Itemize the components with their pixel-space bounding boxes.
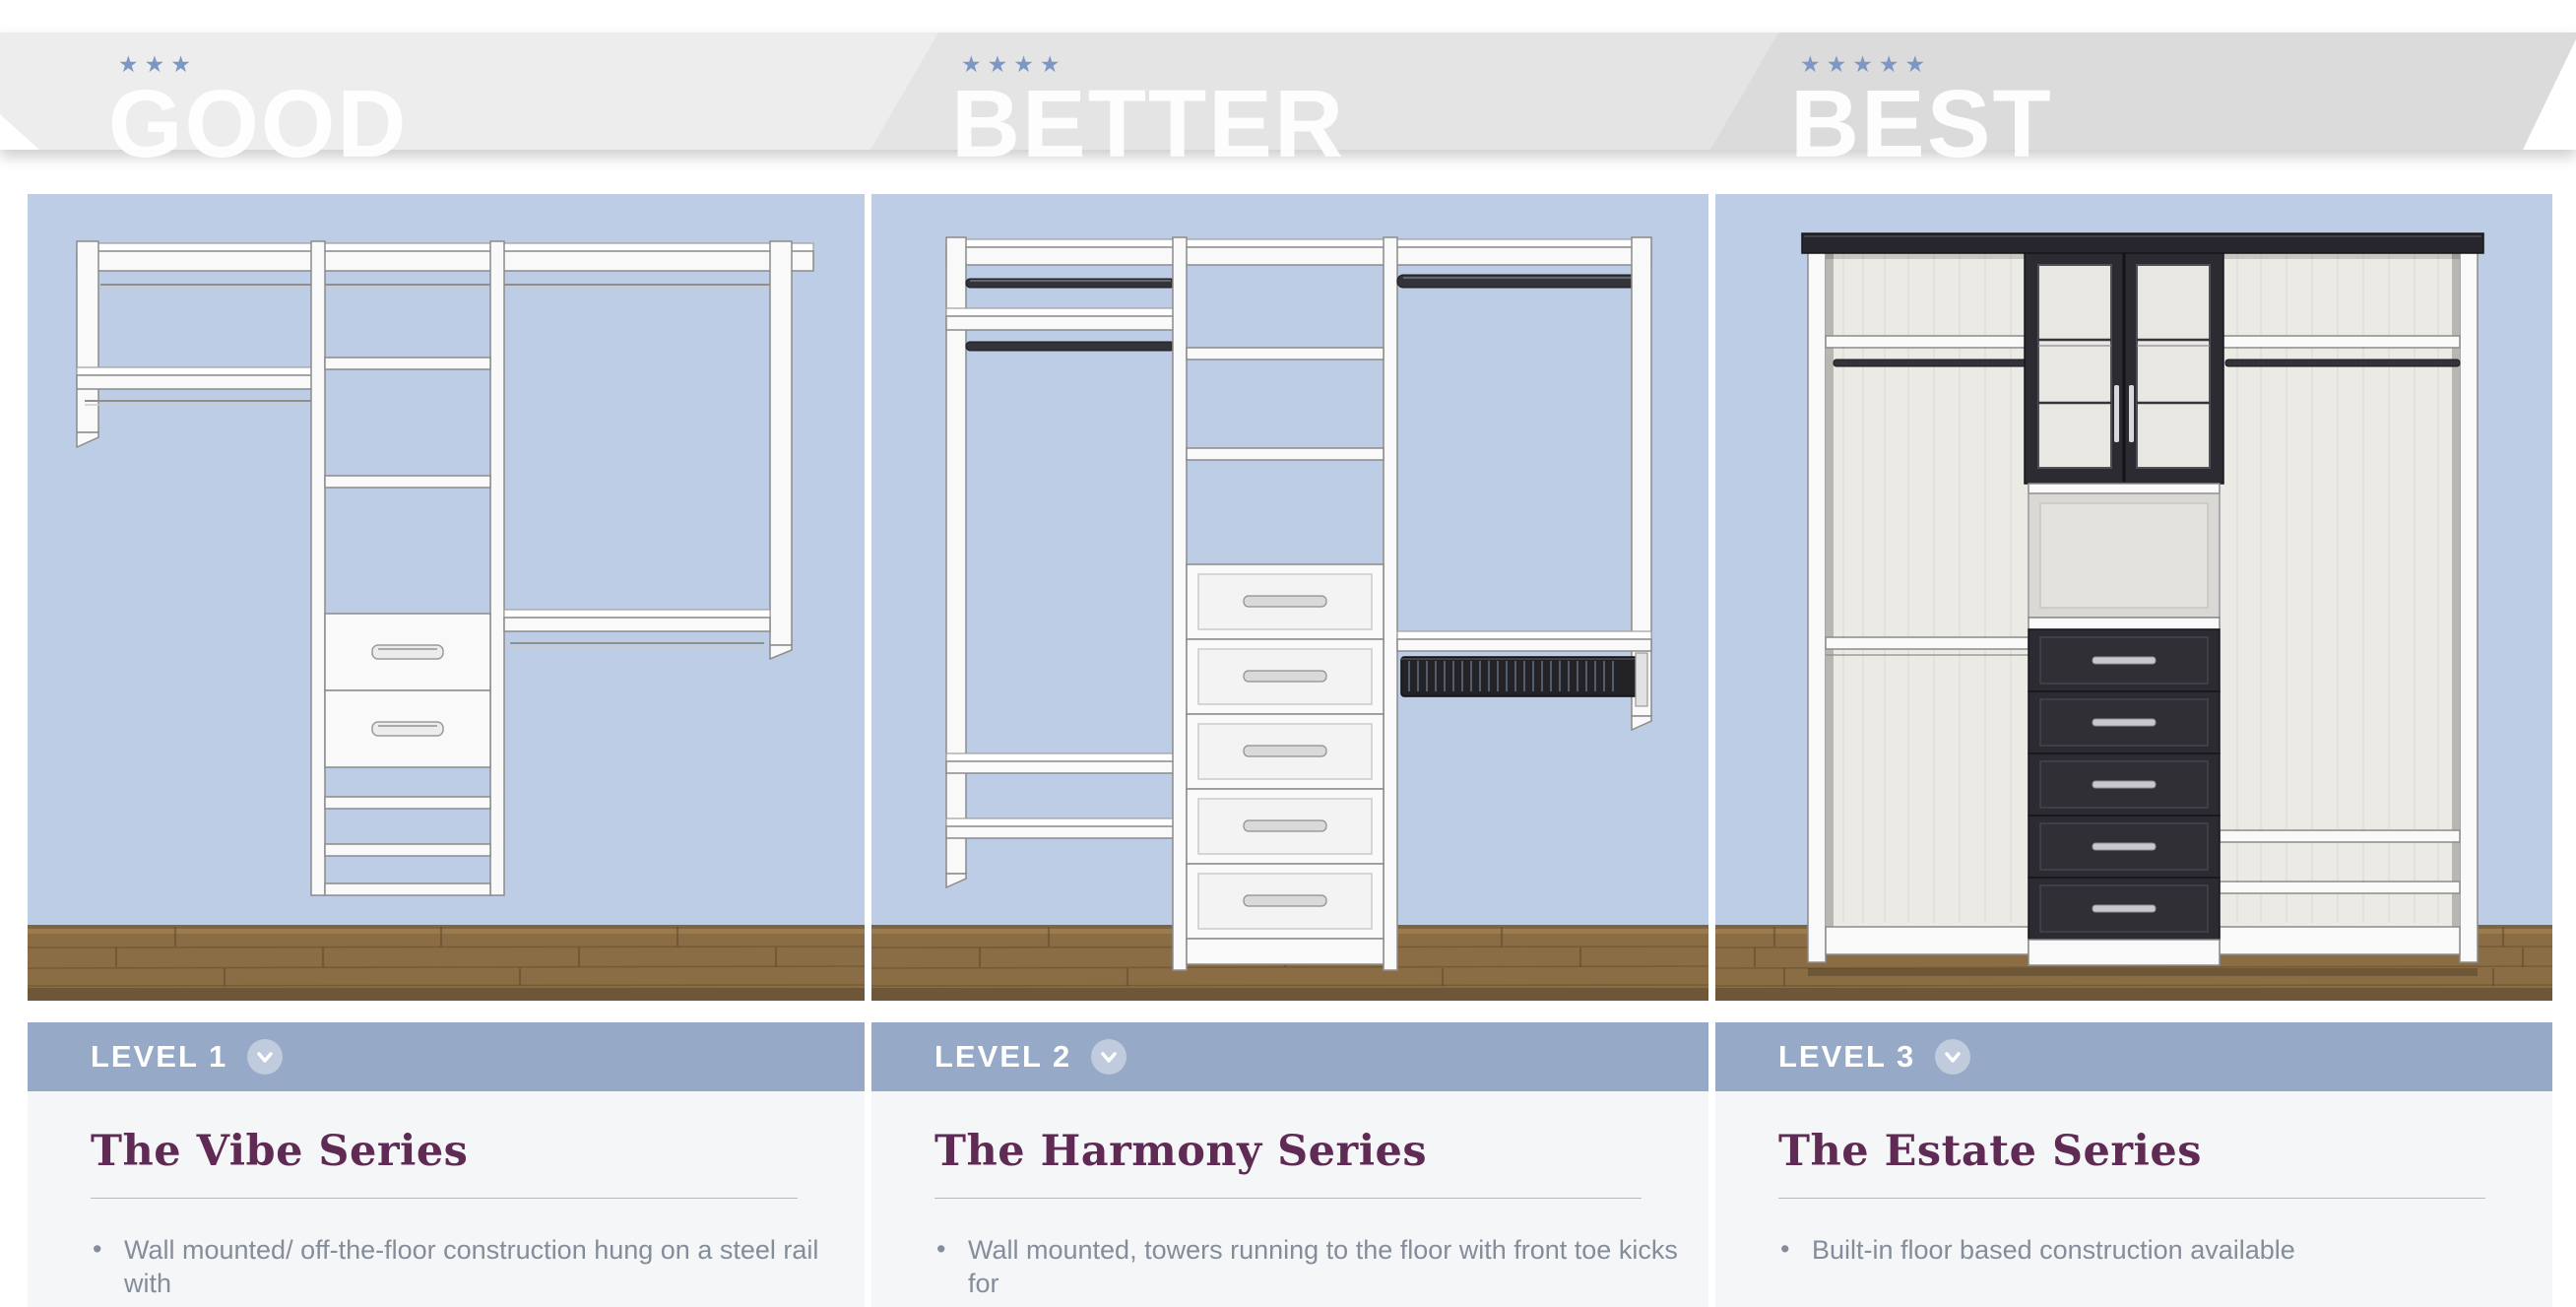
tier-best-label: BEST: [1790, 76, 2053, 171]
tower-shelf: [325, 797, 490, 809]
level-3-expand-button[interactable]: [1935, 1039, 1970, 1075]
center-drawer-tower: [1173, 237, 1397, 970]
level-3-bar[interactable]: LEVEL 3: [1715, 1022, 2552, 1091]
glass-doors: [2025, 251, 2223, 484]
series-card-harmony: The Harmony Series Wall mounted, towers …: [871, 1091, 1708, 1307]
tier-good-label: GOOD: [108, 76, 408, 171]
tower-shelf: [325, 476, 490, 488]
door-handle: [2129, 385, 2134, 442]
dark-hanging-rod: [2225, 359, 2460, 366]
tower-shelf: [325, 844, 490, 856]
top-cap: [1802, 233, 2483, 253]
right-module: [2220, 253, 2460, 954]
title-divider: [91, 1198, 798, 1199]
left-outer-wall: [1808, 251, 1826, 962]
left-module: [1826, 253, 2029, 954]
series-card-estate: The Estate Series Built-in floor based c…: [1715, 1091, 2552, 1307]
feature-item: Wall mounted, towers running to the floo…: [934, 1234, 1708, 1301]
feature-list: Wall mounted/ off-the-floor construction…: [91, 1234, 865, 1301]
tower-shelf: [1187, 348, 1384, 359]
title-divider: [934, 1198, 1642, 1199]
tier-better-label: BETTER: [951, 76, 1345, 171]
level-2-expand-button[interactable]: [1091, 1039, 1127, 1075]
drawer: [325, 690, 490, 767]
tier-banner: ★★★ GOOD ★★★★ BETTER ★★★★★ BEST: [0, 33, 2576, 150]
drawer: [2029, 753, 2220, 816]
closet-image-level-1: [28, 194, 865, 1001]
title-divider: [1778, 1198, 2485, 1199]
cabinet-floor-shadow: [1808, 968, 2478, 976]
chevron-down-icon: [248, 1040, 282, 1074]
toe-kick: [2029, 940, 2220, 965]
comparison-columns: LEVEL 1 The Vibe Series Wall mounted/ of…: [28, 194, 2552, 1307]
drawer: [2029, 878, 2220, 940]
drawer: [2029, 816, 2220, 878]
wood-floor: [28, 925, 865, 1001]
closet-illustration-estate: [1715, 194, 2552, 1001]
drawer: [1187, 564, 1384, 639]
closet-image-level-2: [871, 194, 1708, 1001]
drawer: [2029, 691, 2220, 753]
basket-shelf: [1397, 631, 1651, 639]
drawer: [1187, 789, 1384, 864]
column-better: LEVEL 2 The Harmony Series Wall mounted,…: [871, 194, 1708, 1307]
dark-hanging-rod: [1834, 359, 2029, 366]
feature-item: Wall mounted/ off-the-floor construction…: [91, 1234, 865, 1301]
closet-illustration-harmony: [871, 194, 1708, 1001]
level-1-bar[interactable]: LEVEL 1: [28, 1022, 865, 1091]
chevron-down-icon: [1936, 1040, 1969, 1074]
series-title: The Estate Series: [1778, 1127, 2552, 1176]
feature-item: Built-in floor based construction availa…: [1778, 1234, 2552, 1268]
column-good: LEVEL 1 The Vibe Series Wall mounted/ of…: [28, 194, 865, 1307]
dark-hanging-rod: [966, 342, 1175, 351]
level-2-label: LEVEL 2: [934, 1039, 1071, 1075]
tower-shelf: [325, 358, 490, 369]
door-handle: [2114, 385, 2119, 442]
series-title: The Harmony Series: [934, 1127, 1708, 1176]
drawer: [1187, 639, 1384, 714]
right-end-panel: [770, 241, 792, 659]
level-2-bar[interactable]: LEVEL 2: [871, 1022, 1708, 1091]
toe-kick: [1187, 939, 1384, 964]
feature-list: Wall mounted, towers running to the floo…: [934, 1234, 1708, 1301]
drawer: [1187, 864, 1384, 939]
level-1-expand-button[interactable]: [247, 1039, 283, 1075]
level-1-label: LEVEL 1: [91, 1039, 227, 1075]
top-shelf-assembly: [946, 239, 1651, 265]
shelf: [2220, 882, 2460, 893]
chevron-down-icon: [1092, 1040, 1126, 1074]
drawer: [325, 614, 490, 690]
left-lower-shelf: [946, 818, 1177, 826]
drawer: [2029, 629, 2220, 691]
drawer: [1187, 714, 1384, 789]
toe-kick: [1826, 927, 2029, 954]
right-outer-wall: [2460, 251, 2478, 962]
feature-list: Built-in floor based construction availa…: [1778, 1234, 2552, 1268]
series-card-vibe: The Vibe Series Wall mounted/ off-the-fl…: [28, 1091, 865, 1307]
wall: [28, 194, 865, 1001]
column-best: LEVEL 3 The Estate Series Built-in floor…: [1715, 194, 2552, 1307]
left-lower-shelf: [946, 753, 1177, 761]
center-tower: [2025, 251, 2223, 965]
tower-bottom: [325, 883, 490, 895]
flat-panel: [2029, 493, 2220, 618]
closet-image-level-3: [1715, 194, 2552, 1001]
left-end-panel: [77, 241, 98, 447]
toe-kick: [2220, 927, 2460, 954]
series-title: The Vibe Series: [91, 1127, 865, 1176]
shelf: [2220, 830, 2460, 842]
wardrobe-body: [1802, 233, 2483, 965]
tower-shelf: [1187, 448, 1384, 460]
shelf: [2220, 336, 2460, 348]
left-end-panel: [946, 237, 966, 887]
shelf: [1826, 637, 2029, 649]
shelf: [1826, 336, 2029, 348]
closet-illustration-vibe: [28, 194, 865, 1001]
banner-left-page-curl: [0, 114, 39, 150]
level-3-label: LEVEL 3: [1778, 1039, 1915, 1075]
dark-hanging-rod: [1397, 275, 1640, 288]
